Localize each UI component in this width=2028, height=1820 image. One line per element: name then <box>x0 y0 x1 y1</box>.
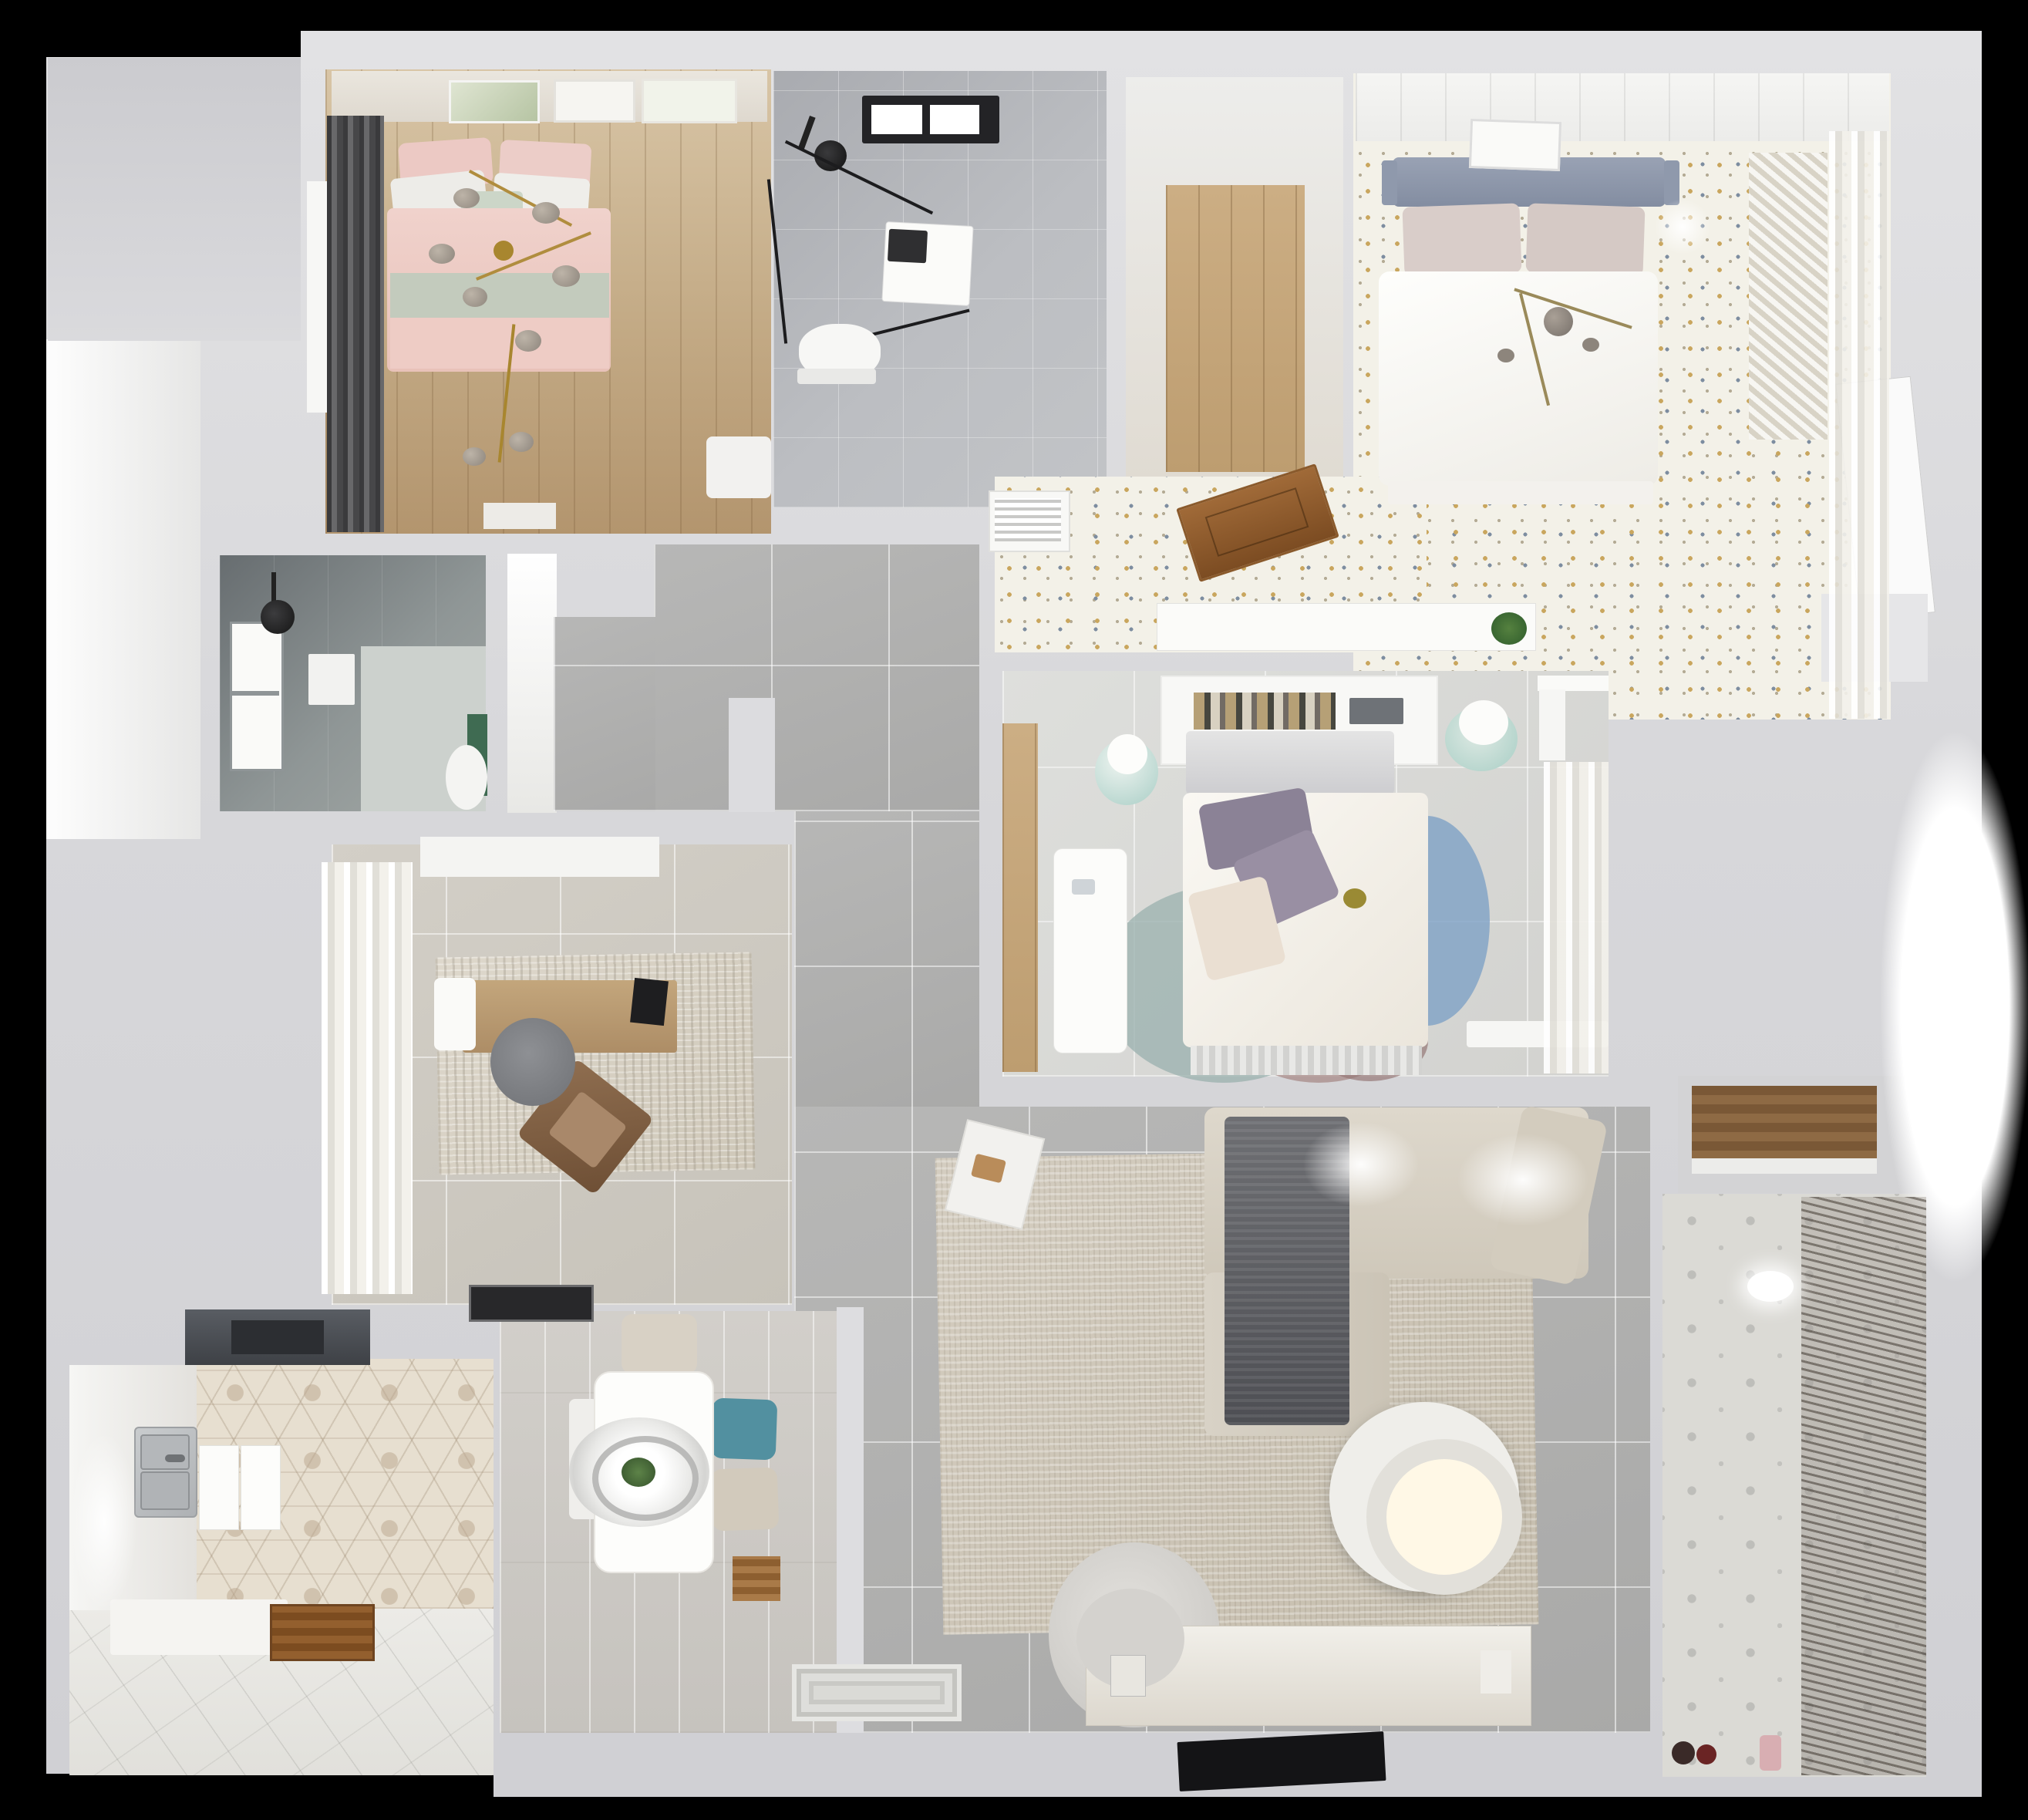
study-monitor <box>630 978 669 1026</box>
study-curtain <box>322 862 413 1294</box>
exterior-wall-top-left <box>48 58 301 341</box>
kitchen-window-glow <box>71 1433 137 1610</box>
bedroom2-bed-foot <box>1388 481 1653 504</box>
bedroom1-curtain <box>327 116 384 532</box>
hallway-upper-floor <box>654 544 979 811</box>
bedroom1-chandelier-bulb-1 <box>453 188 480 208</box>
entry-doormat <box>792 1664 962 1721</box>
bedroom3-shelf-books <box>1194 693 1336 730</box>
bedroom3-vanity-side <box>1539 689 1565 760</box>
balcony-toy-red <box>1696 1744 1716 1764</box>
balcony-shelf-edge <box>1692 1158 1877 1174</box>
living-coffee-table-ring <box>1366 1439 1522 1595</box>
bedroom1-foot-bench <box>483 503 556 529</box>
bedroom3-book-stack <box>1349 698 1403 724</box>
dining-chair-teal <box>711 1398 778 1461</box>
bedroom3-gold-accent <box>1343 888 1366 908</box>
study-chair-white <box>434 978 476 1050</box>
bedroom2-wardrobe-louvers <box>1749 153 1828 440</box>
bedroom1-chandelier-bulb-5 <box>463 287 487 307</box>
bedroom2-plant <box>1491 612 1527 645</box>
bedroom1-chandelier-bulb-8 <box>463 447 486 466</box>
bedroom2-console-halfwall <box>1157 603 1536 651</box>
kitchen-sink-basin-1 <box>140 1434 190 1470</box>
bedroom3-wood-strip <box>1002 723 1038 1072</box>
bedroom1-art-frame-white <box>554 79 635 123</box>
bedroom1-nightstand <box>706 436 771 498</box>
wall-stub-hallway <box>729 698 775 812</box>
bathroom2-toilet <box>446 745 487 810</box>
bedroom2-art-frame <box>1469 119 1561 171</box>
bedroom3-pouf-top <box>1459 700 1508 745</box>
cutout-bottom-left <box>46 1774 494 1797</box>
kitchen-faucet <box>165 1454 185 1462</box>
living-sofa-glow-2 <box>1457 1134 1588 1226</box>
bedroom2-pillow-right <box>1525 203 1645 276</box>
study-office-chair <box>490 1018 575 1106</box>
bathroom2-shower-head <box>261 600 295 634</box>
balcony-storage-shelf <box>1692 1086 1877 1160</box>
cutout-top-left <box>46 31 301 57</box>
bedroom1-chandelier-bulb-7 <box>509 432 534 452</box>
bedroom2-wardrobe-side <box>1829 131 1889 719</box>
living-console-decor-left <box>1110 1655 1146 1697</box>
dining-chair-top <box>622 1314 697 1374</box>
balcony-toy-pink <box>1760 1735 1781 1771</box>
bedroom3-sheer-curtain <box>1544 762 1609 1073</box>
kitchen-sink-basin-2 <box>140 1471 190 1510</box>
study-doormat <box>469 1285 594 1322</box>
kitchen-wood-door <box>270 1604 375 1661</box>
bedroom3-nightstand-lamp <box>1107 734 1147 774</box>
bedroom2-chandelier-bulb-1 <box>1582 338 1599 352</box>
bedroom1-chandelier-hub <box>494 241 514 261</box>
bedroom3-bed-skirt <box>1191 1046 1422 1075</box>
bedroom3-desk-items <box>1072 879 1095 895</box>
kitchen-hood-vent <box>231 1320 324 1354</box>
bedroom3-vanity-top <box>1538 676 1609 691</box>
living-sofa-glow-1 <box>1303 1122 1419 1207</box>
bedroom1-chandelier-bulb-3 <box>429 244 455 264</box>
bedroom1-art-frame-green <box>449 80 540 123</box>
dining-centerpiece-plant <box>622 1458 655 1487</box>
bathroom2-window-bar <box>230 691 279 696</box>
bedroom2-ac-vent-louvers <box>995 498 1061 541</box>
bedroom2-ceiling-spot-glow <box>1655 199 1710 254</box>
bathroom2-shower-tray <box>308 654 355 705</box>
living-console-decor-right <box>1481 1650 1511 1694</box>
closet-wood-floor <box>1166 185 1305 472</box>
floorplan-render: Apartment 3D Floor Plan — Top-Down Rende… <box>0 0 2028 1820</box>
bedroom2-chandelier-hub <box>1544 307 1573 336</box>
cutout-right-top <box>1982 31 2028 729</box>
bathroom1-skylight-pane-2 <box>930 105 979 134</box>
entry-wood-mat <box>733 1556 780 1601</box>
bedroom2-ceiling-panel <box>1356 73 1889 141</box>
balcony-ceiling-light <box>1747 1271 1794 1302</box>
bedroom1-art-frame-botanical <box>642 79 737 123</box>
bedroom1-duvet-fold <box>390 318 609 369</box>
study-top-cabinet <box>420 837 659 877</box>
bedroom2-chandelier-bulb-2 <box>1497 349 1514 362</box>
kitchen-cabinet-door-2 <box>241 1445 281 1530</box>
bedroom2-pillow-left <box>1402 203 1521 276</box>
bathroom2-shower-arm <box>271 572 276 603</box>
exterior-ledge-left <box>46 339 200 839</box>
bathroom1-skylight-pane-1 <box>871 105 922 134</box>
bedroom1-chandelier-bulb-2 <box>532 202 560 224</box>
dining-chair-beige <box>711 1468 780 1532</box>
hallway-upper-side-floor <box>554 617 655 811</box>
lightwell-floor <box>507 554 557 813</box>
bathroom1-toilet-tank <box>797 369 876 384</box>
balcony-toy-dark <box>1672 1741 1695 1764</box>
bedroom2-duvet <box>1379 271 1658 486</box>
bathroom2-window <box>230 622 284 771</box>
bathroom1-vanity-sink <box>888 229 928 264</box>
balcony-blinds <box>1801 1197 1926 1775</box>
kitchen-cabinet-door-1 <box>199 1445 239 1530</box>
hallway-corridor-floor <box>794 811 979 1112</box>
bedroom1-chandelier-bulb-6 <box>515 330 541 352</box>
bedroom2-headboard-wing-left <box>1382 160 1397 205</box>
bedroom1-window <box>307 181 327 413</box>
bedroom3-headboard <box>1186 731 1394 794</box>
bedroom1-chandelier-bulb-4 <box>552 265 580 287</box>
